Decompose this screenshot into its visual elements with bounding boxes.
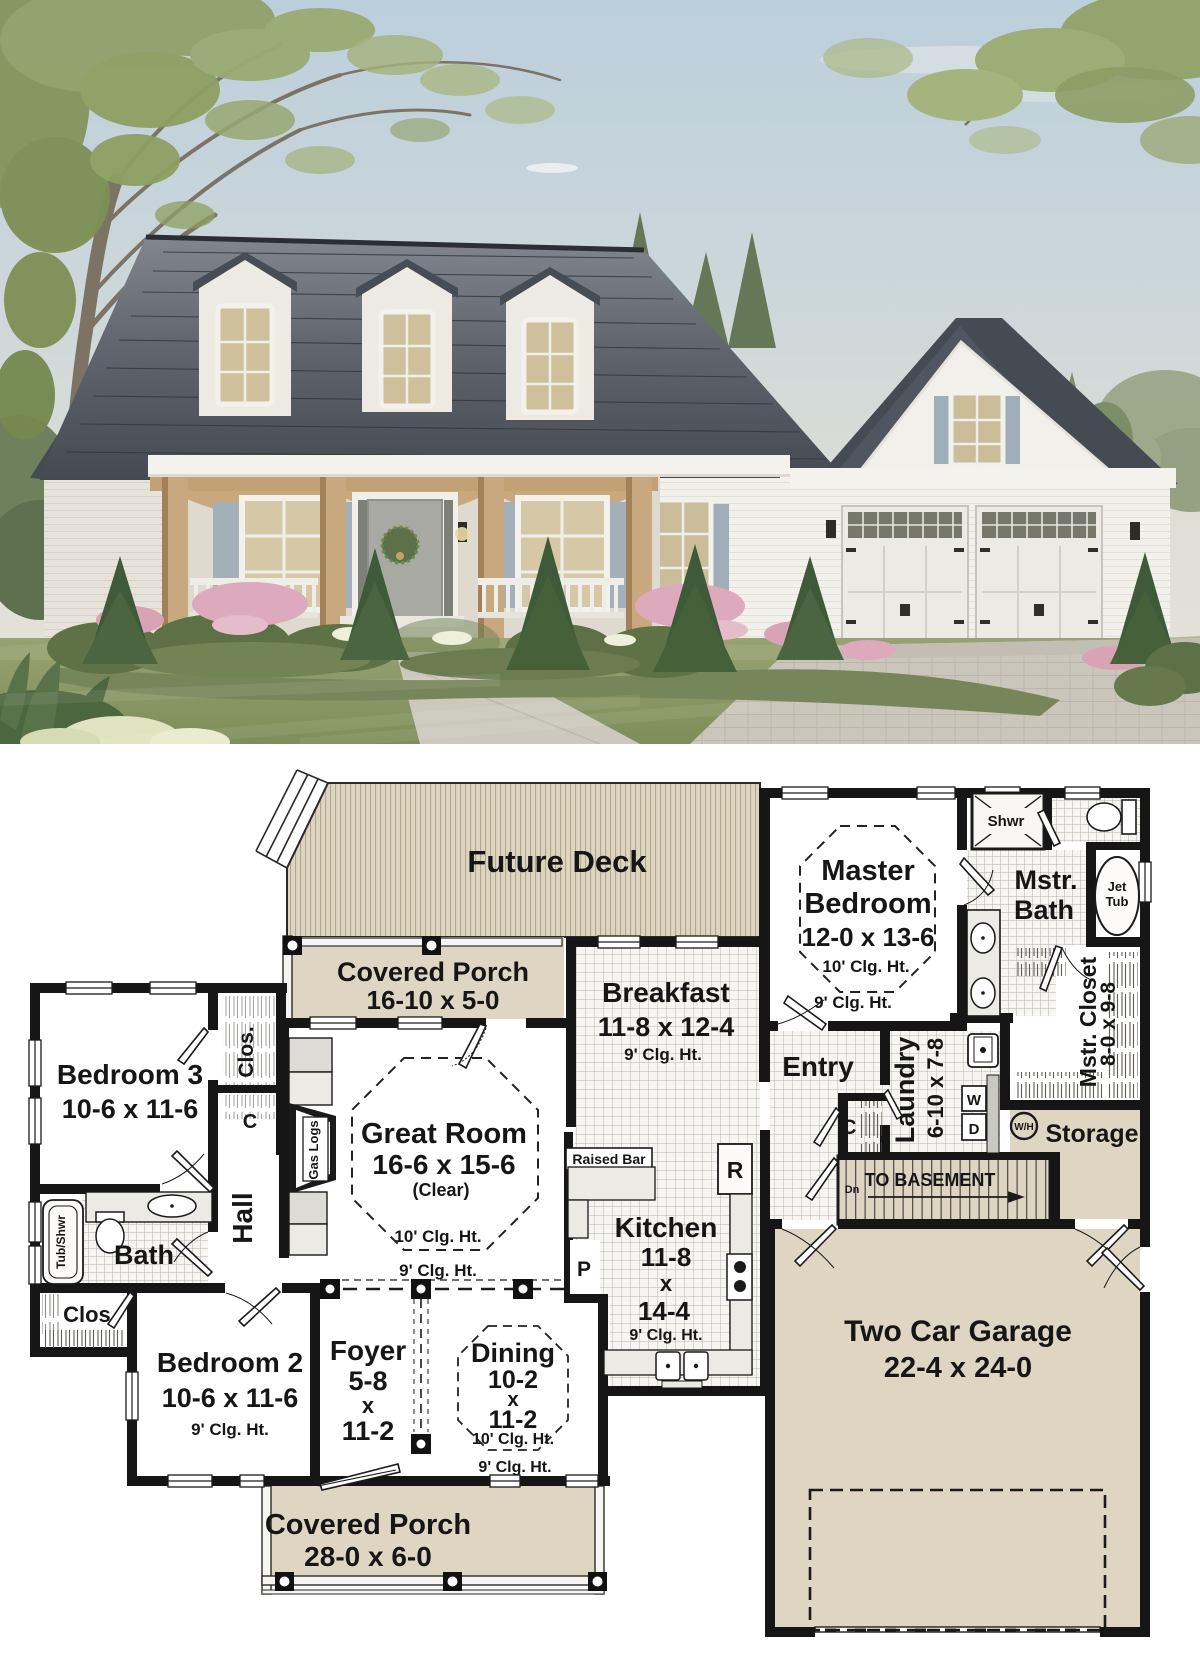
svg-text:16-6 x 15-6: 16-6 x 15-6: [372, 1149, 515, 1180]
svg-text:28-0 x 6-0: 28-0 x 6-0: [304, 1541, 432, 1572]
svg-text:11-2: 11-2: [489, 1406, 538, 1434]
svg-text:Breakfast: Breakfast: [602, 977, 730, 1008]
svg-text:W/H: W/H: [1014, 1122, 1033, 1133]
svg-text:Future Deck: Future Deck: [467, 844, 647, 879]
svg-text:Bedroom: Bedroom: [804, 888, 931, 920]
svg-text:10' Clg. Ht.: 10' Clg. Ht.: [822, 957, 909, 976]
svg-text:Kitchen: Kitchen: [615, 1212, 718, 1243]
svg-text:Bedroom 2: Bedroom 2: [157, 1347, 303, 1378]
svg-text:Tub/Shwr: Tub/Shwr: [54, 1215, 68, 1269]
svg-text:22-4 x 24-0: 22-4 x 24-0: [884, 1352, 1032, 1384]
svg-text:10-6 x 11-6: 10-6 x 11-6: [62, 1094, 199, 1124]
svg-text:x: x: [362, 1393, 375, 1418]
svg-text:Laundry: Laundry: [890, 1037, 920, 1144]
svg-text:11-8: 11-8: [641, 1242, 692, 1272]
svg-text:12-0 x 13-6: 12-0 x 13-6: [802, 922, 935, 952]
svg-text:C: C: [841, 1116, 856, 1139]
svg-text:Two Car Garage: Two Car Garage: [844, 1315, 1072, 1348]
svg-text:11-8 x 12-4: 11-8 x 12-4: [598, 1012, 735, 1042]
svg-text:Bedroom 3: Bedroom 3: [57, 1059, 203, 1090]
svg-text:Mstr.: Mstr.: [1014, 865, 1077, 895]
svg-text:Gas Logs: Gas Logs: [306, 1120, 321, 1179]
svg-text:Storage: Storage: [1045, 1120, 1138, 1148]
svg-text:Entry: Entry: [782, 1051, 854, 1082]
svg-text:Foyer: Foyer: [330, 1335, 406, 1366]
svg-text:Great Room: Great Room: [361, 1118, 527, 1150]
svg-text:Dn: Dn: [845, 1184, 860, 1196]
svg-text:9' Clg. Ht.: 9' Clg. Ht.: [478, 1459, 551, 1476]
svg-text:(Clear): (Clear): [412, 1180, 469, 1200]
svg-text:8-0 x 9-8: 8-0 x 9-8: [1097, 982, 1120, 1066]
svg-text:10-6 x 11-6: 10-6 x 11-6: [162, 1383, 299, 1413]
svg-text:Covered Porch: Covered Porch: [337, 957, 529, 987]
svg-text:Clos.: Clos.: [235, 1026, 258, 1077]
svg-text:9' Clg. Ht.: 9' Clg. Ht.: [399, 1261, 477, 1280]
svg-text:R: R: [727, 1157, 744, 1183]
svg-text:6-10 x 7-8: 6-10 x 7-8: [923, 1038, 948, 1138]
svg-text:Raised Bar: Raised Bar: [572, 1151, 646, 1167]
svg-text:9' Clg. Ht.: 9' Clg. Ht.: [629, 1327, 702, 1344]
svg-text:C: C: [243, 1111, 257, 1133]
svg-text:10' Clg. Ht.: 10' Clg. Ht.: [394, 1227, 481, 1246]
svg-text:D: D: [969, 1121, 980, 1138]
svg-text:5-8: 5-8: [348, 1366, 387, 1396]
svg-text:Bath: Bath: [1014, 895, 1074, 925]
svg-text:Covered Porch: Covered Porch: [265, 1509, 471, 1541]
svg-text:11-2: 11-2: [342, 1416, 395, 1446]
svg-text:Shwr: Shwr: [988, 813, 1025, 830]
svg-text:9' Clg. Ht.: 9' Clg. Ht.: [191, 1420, 269, 1439]
svg-text:Hall: Hall: [227, 1192, 258, 1243]
svg-text:Dining: Dining: [471, 1338, 555, 1368]
svg-text:Tub: Tub: [1106, 894, 1129, 909]
svg-text:Master: Master: [821, 855, 915, 887]
svg-text:TO BASEMENT: TO BASEMENT: [865, 1170, 996, 1190]
svg-text:10' Clg. Ht.: 10' Clg. Ht.: [472, 1431, 554, 1448]
svg-text:x: x: [660, 1271, 673, 1296]
svg-text:P: P: [577, 1258, 591, 1281]
svg-text:Bath: Bath: [114, 1240, 174, 1270]
svg-text:9' Clg. Ht.: 9' Clg. Ht.: [624, 1045, 702, 1064]
svg-text:16-10 x 5-0: 16-10 x 5-0: [367, 985, 500, 1015]
svg-text:9' Clg. Ht.: 9' Clg. Ht.: [814, 993, 892, 1012]
svg-text:14-4: 14-4: [638, 1296, 691, 1326]
svg-text:Jet: Jet: [1108, 879, 1127, 894]
svg-text:W: W: [967, 1092, 982, 1109]
